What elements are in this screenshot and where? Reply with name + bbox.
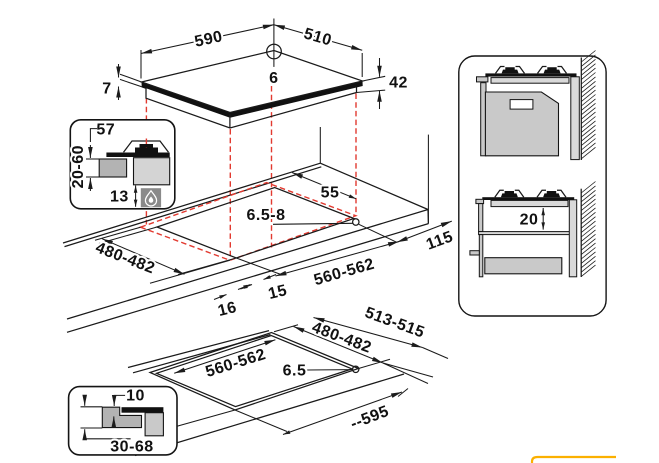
svg-text:10: 10 xyxy=(126,388,145,405)
svg-text:7: 7 xyxy=(102,81,111,98)
svg-text:57: 57 xyxy=(96,122,115,139)
svg-text:6.5: 6.5 xyxy=(283,363,307,380)
svg-text:30-68: 30-68 xyxy=(110,439,153,456)
svg-text:20-60: 20-60 xyxy=(70,145,87,188)
svg-text:13: 13 xyxy=(110,189,129,206)
svg-text:42: 42 xyxy=(389,75,408,92)
svg-text:55: 55 xyxy=(321,185,340,202)
svg-text:6.5-8: 6.5-8 xyxy=(247,207,286,224)
svg-text:20: 20 xyxy=(520,212,539,229)
svg-text:6: 6 xyxy=(269,70,278,87)
